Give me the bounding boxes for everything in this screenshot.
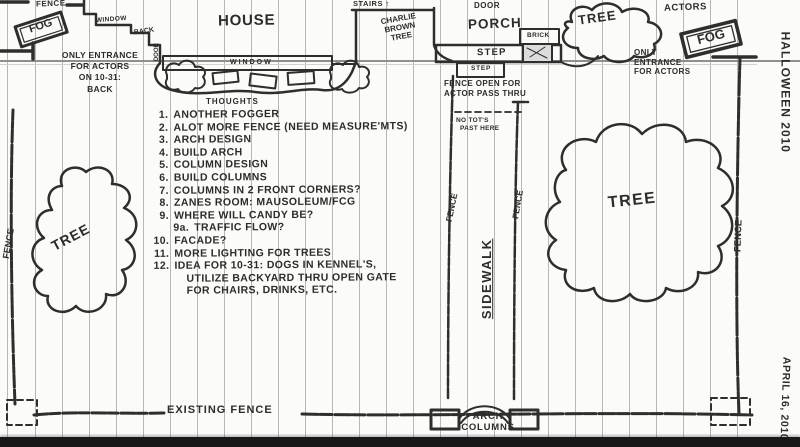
arch-columns-label: ARCH COLUMNS	[448, 412, 528, 433]
actors-label: ACTORS	[664, 2, 707, 13]
step-upper-label: STEP	[477, 48, 507, 58]
sidewalk-label: SIDEWALK	[480, 229, 494, 329]
left-entrance-note: ONLY ENTRANCE FOR ACTORS ON 10-31: BACK	[50, 50, 150, 95]
fence-open-line: FENCE OPEN FOR	[444, 79, 554, 89]
sidewalk-right-fence-line	[513, 102, 528, 399]
garden-curve-right	[561, 56, 598, 66]
porch-door-label: DOOR	[474, 2, 500, 10]
right-entrance-line: FOR ACTORS	[634, 67, 714, 77]
halloween-2010-note: HALLOWEEN 2010	[779, 22, 792, 162]
thought-item: FOR CHAIRS, DRINKS, ETC.	[153, 283, 423, 297]
fence-top-left-label: FENCE	[36, 0, 66, 9]
corner-marker-right	[711, 398, 750, 425]
thought-item: 2.ALOT MORE FENCE (NEED MEASURE'MTS)	[151, 120, 421, 134]
planter-box-3	[288, 71, 315, 85]
no-tots-note: NO TOT'S PAST HERE	[456, 117, 526, 133]
thoughts-list: 1.ANOTHER FOGGER 2.ALOT MORE FENCE (NEED…	[151, 107, 422, 298]
front-window-label: WINDOW	[230, 59, 273, 66]
corner-marker-left	[7, 400, 37, 425]
no-tots-line: NO TOT'S	[456, 117, 526, 125]
tree-right-outline	[546, 124, 733, 301]
left-entrance-line: FOR ACTORS	[50, 61, 150, 72]
thoughts-title: THOUGHTS	[206, 98, 259, 106]
step-lower-label: STEP	[471, 66, 491, 73]
thought-item: UTILIZE BACKYARD THRU OPEN GATE	[152, 271, 422, 285]
arch-line: COLUMNS	[448, 423, 528, 434]
right-entrance-note: ONLY ENTRANCE FOR ACTORS	[634, 48, 714, 77]
bottom-fence-line-left	[34, 413, 164, 415]
house-label: HOUSE	[218, 13, 276, 30]
scan-edge-shadow	[0, 437, 800, 447]
right-fence-label: FENCE	[733, 214, 744, 258]
brick-label: BRICK	[527, 33, 550, 40]
shrub-left	[166, 61, 205, 93]
arch-line: ARCH	[448, 412, 528, 423]
back-door-label: DOOR	[154, 40, 160, 64]
left-entrance-line: ON 10-31:	[50, 72, 150, 83]
left-fence-line	[11, 110, 15, 404]
no-tots-line: PAST HERE	[456, 125, 526, 133]
planter-box-2	[249, 73, 276, 88]
right-entrance-line: ENTRANCE	[634, 58, 714, 68]
existing-fence-label: EXISTING FENCE	[167, 405, 273, 417]
left-entrance-line: BACK	[50, 84, 150, 95]
planter-box-1	[213, 71, 239, 85]
sidewalk-left-fence-line	[448, 76, 453, 398]
fence-open-line: ACTOR PASS THRU	[444, 89, 554, 99]
scanned-yard-plan: FENCE FOG ONLY ENTRANCE FOR ACTORS ON 10…	[0, 0, 800, 447]
stairs-label: STAIRS ↑	[353, 0, 390, 8]
left-entrance-line: ONLY ENTRANCE	[50, 50, 150, 61]
garden-bed-line	[155, 62, 356, 93]
april-16-2010-note: APRIL 16, 2010	[777, 351, 791, 446]
right-entrance-line: ONLY	[634, 48, 714, 58]
fence-open-note: FENCE OPEN FOR ACTOR PASS THRU	[444, 79, 554, 99]
porch-label: PORCH	[468, 16, 522, 32]
